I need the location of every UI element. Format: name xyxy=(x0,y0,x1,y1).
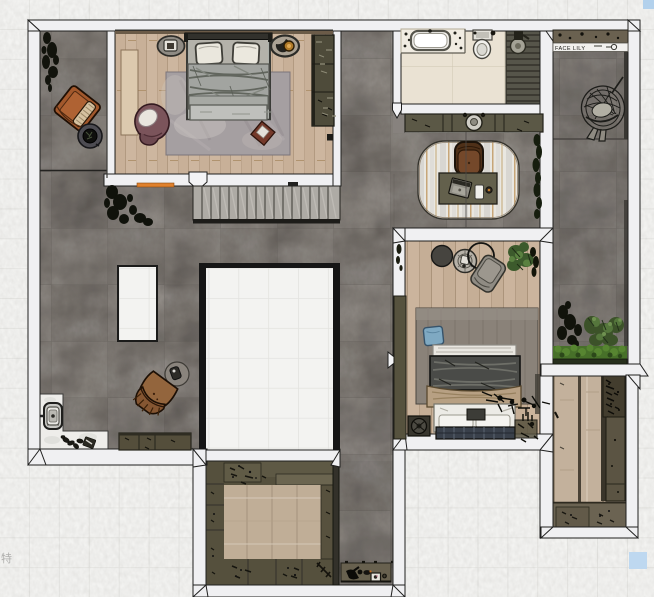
svg-text:特: 特 xyxy=(1,551,12,565)
svg-text:FACE LILY: FACE LILY xyxy=(555,46,585,52)
